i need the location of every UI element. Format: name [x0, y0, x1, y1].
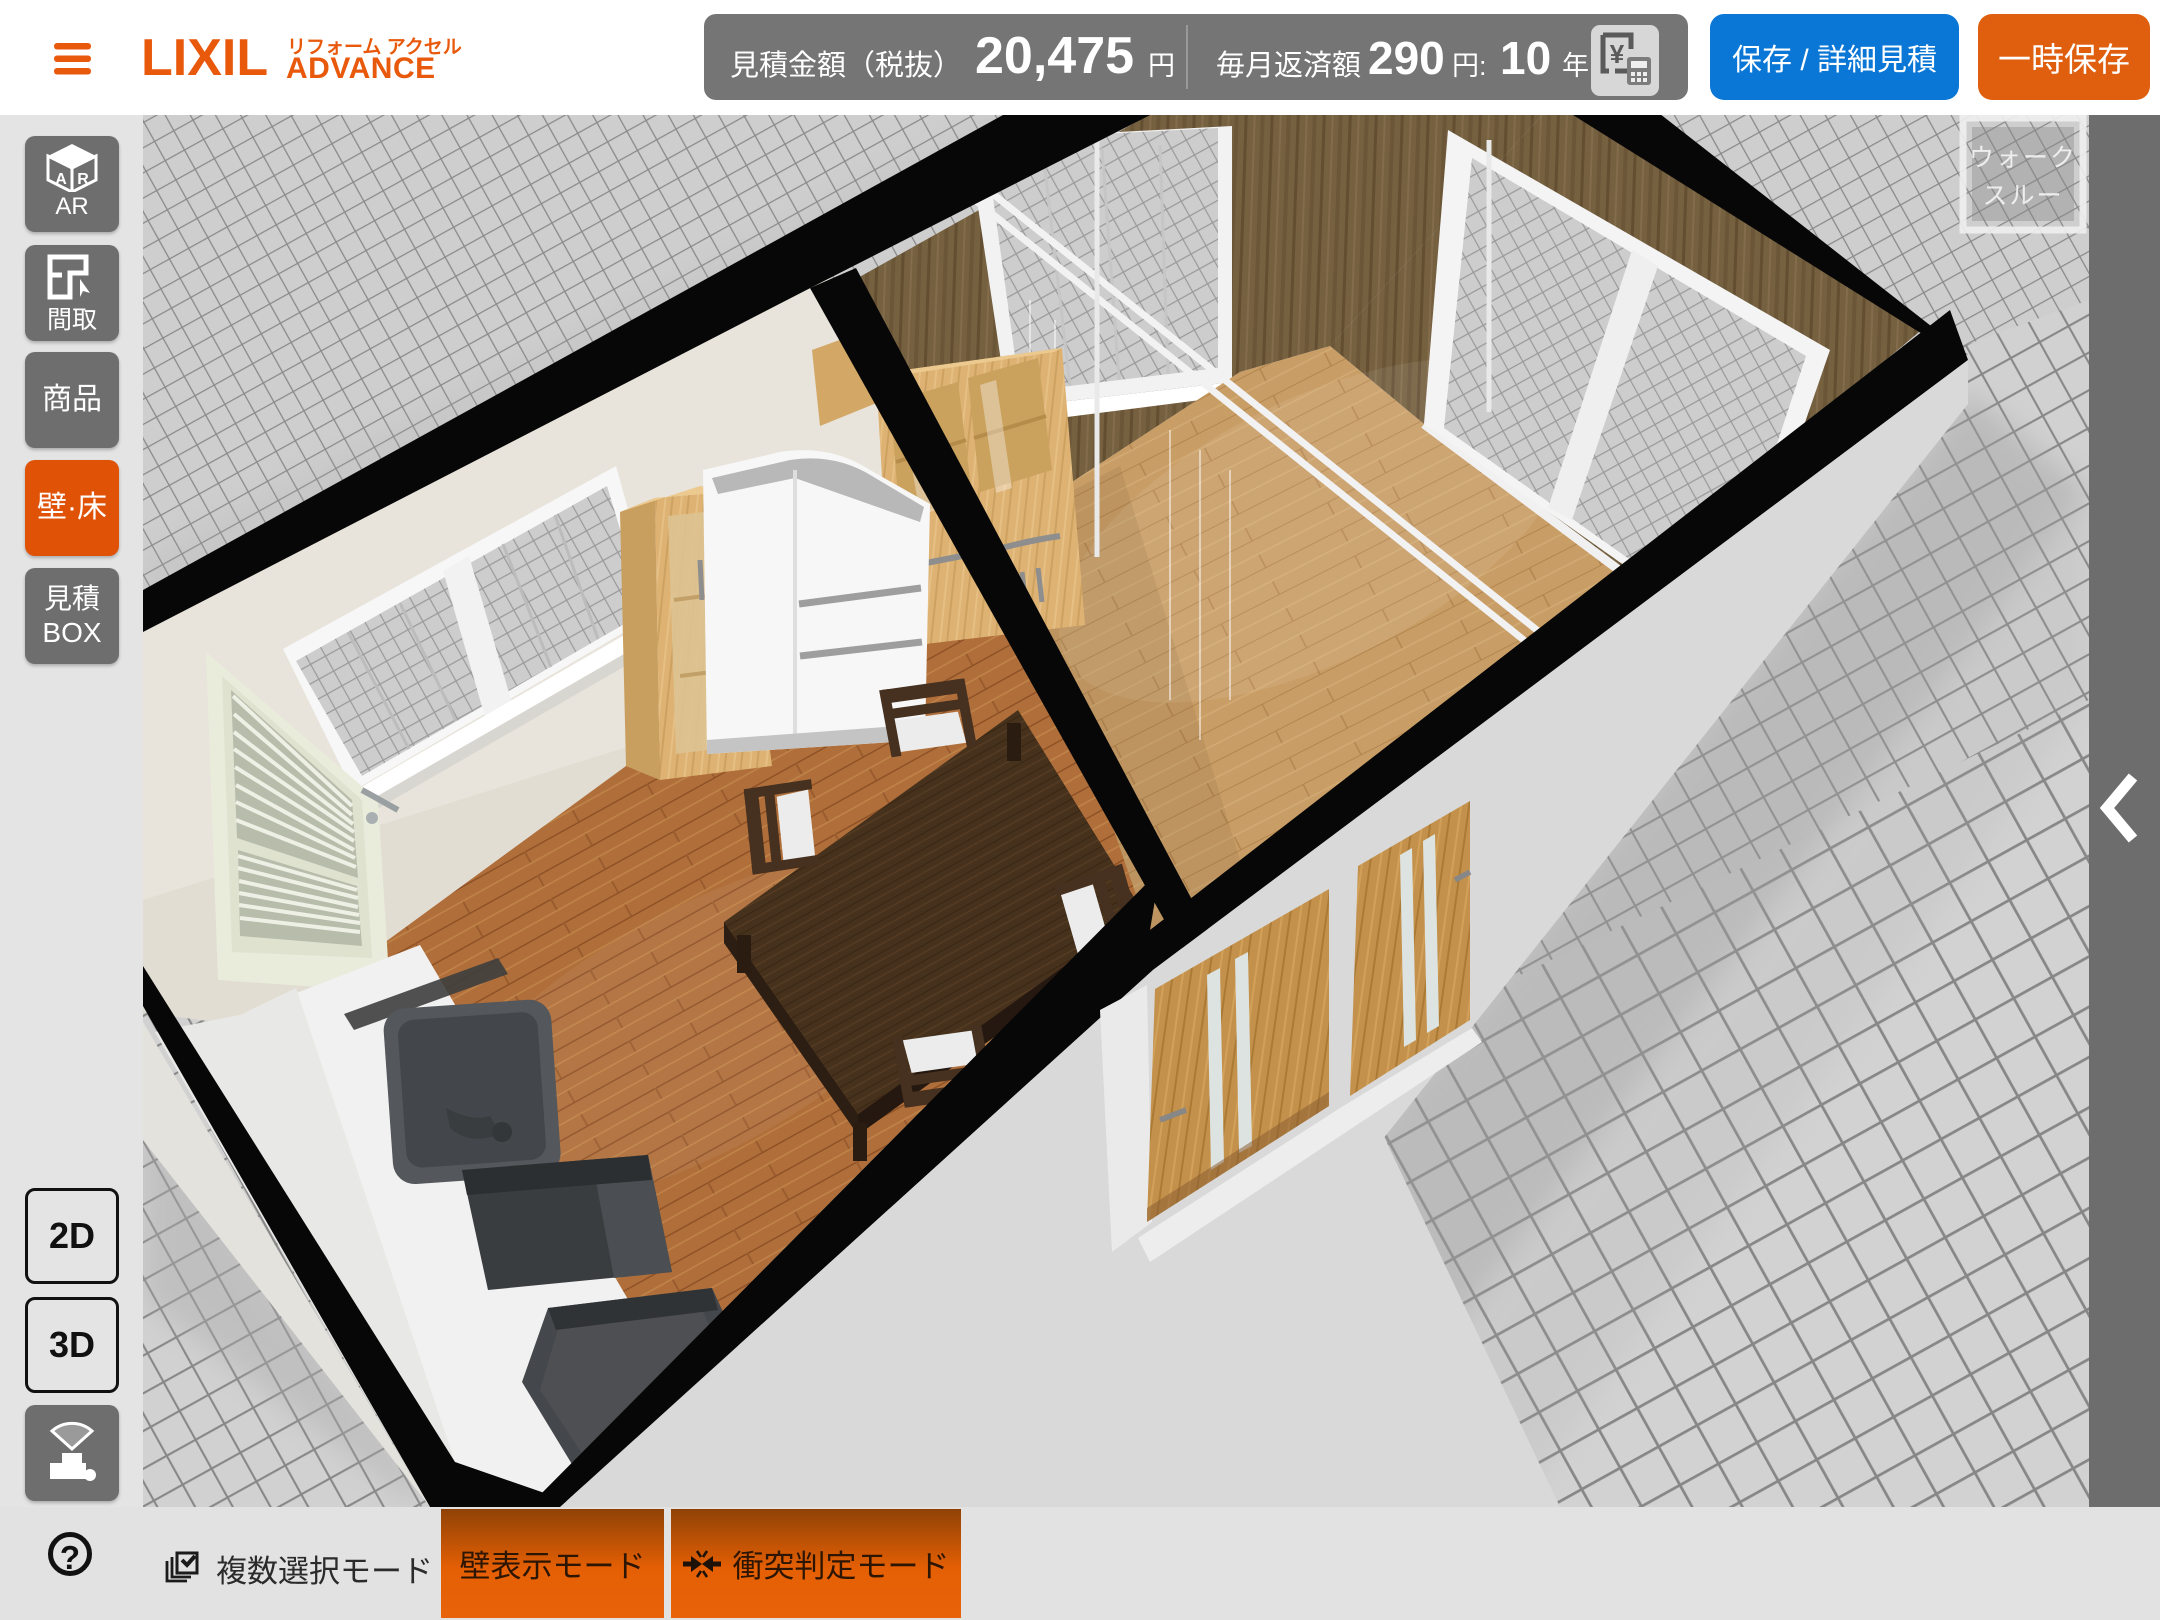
svg-text:A: A: [55, 171, 67, 188]
svg-text:ウォーク: ウォーク: [1969, 144, 2077, 172]
svg-text:R: R: [77, 171, 89, 188]
svg-text:スルー: スルー: [1982, 182, 2063, 210]
svg-text:¥: ¥: [1610, 39, 1625, 69]
